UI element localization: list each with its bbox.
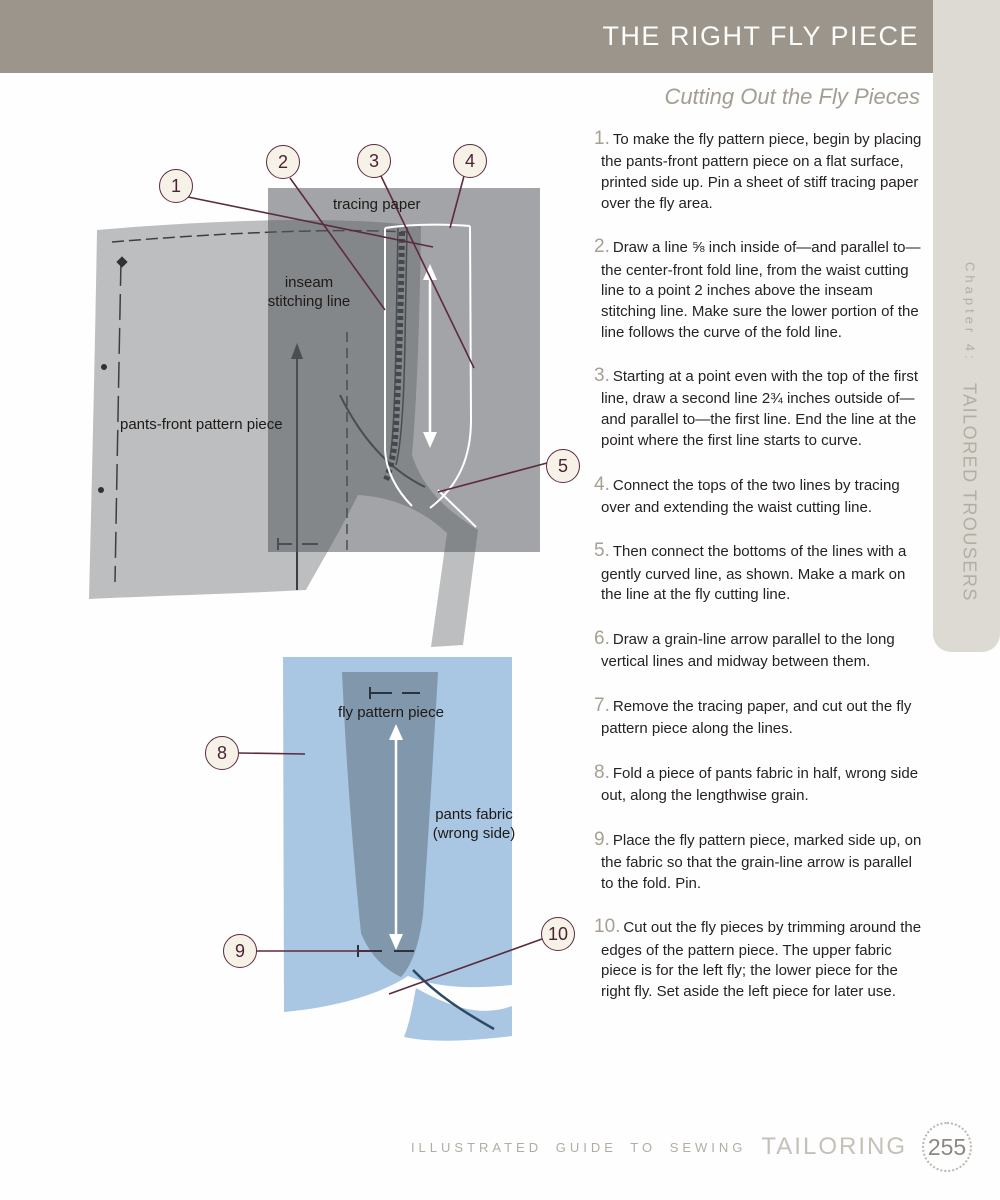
page-title: THE RIGHT FLY PIECE — [0, 0, 933, 73]
step-8: 8.Fold a piece of pants fabric in half, … — [594, 760, 924, 807]
step-number: 2. — [594, 236, 610, 257]
chapter-title: TAILORED TROUSERS — [960, 383, 980, 602]
diagram-cutting-fabric-art — [180, 640, 600, 1060]
callout-9: 9 — [223, 934, 257, 968]
step-6: 6.Draw a grain-line arrow parallel to th… — [594, 626, 924, 673]
page-footer: ILLUSTRATED GUIDE TO SEWING TAILORING 25… — [0, 1122, 972, 1172]
chapter-tab: Chapter 4: TAILORED TROUSERS — [933, 0, 1000, 652]
diagram-tracing-fly-art — [80, 140, 590, 660]
step-text: Then connect the bottoms of the lines wi… — [601, 543, 906, 603]
label-inseam-stitching-line: inseam stitching line — [255, 274, 363, 312]
step-number: 5. — [594, 540, 610, 561]
label-pants-fabric: pants fabric (wrong side) — [430, 806, 518, 844]
step-text: Draw a grain-line arrow parallel to the … — [601, 631, 895, 670]
label-inseam-line2: stitching line — [268, 293, 351, 310]
step-number: 4. — [594, 474, 610, 495]
step-1: 1.To make the fly pattern piece, begin b… — [594, 126, 924, 214]
section-subtitle: Cutting Out the Fly Pieces — [664, 84, 920, 110]
pants-fabric-lower — [404, 988, 512, 1041]
step-text: To make the fly pattern piece, begin by … — [601, 131, 921, 212]
diagram-tracing-fly: tracing paper inseam stitching line pant… — [80, 140, 590, 660]
step-text: Connect the tops of the two lines by tra… — [601, 477, 900, 516]
callout-4: 4 — [453, 144, 487, 178]
step-5: 5.Then connect the bottoms of the lines … — [594, 538, 924, 606]
step-7: 7.Remove the tracing paper, and cut out … — [594, 693, 924, 740]
label-tracing-paper: tracing paper — [333, 196, 421, 215]
step-3: 3.Starting at a point even with the top … — [594, 363, 924, 451]
book-page: THE RIGHT FLY PIECE Chapter 4: TAILORED … — [0, 0, 1000, 1200]
step-text: Draw a line ⅝ inch inside of—and paralle… — [601, 239, 921, 340]
step-number: 1. — [594, 128, 610, 149]
page-number-badge: 255 — [922, 1122, 972, 1172]
page-number: 255 — [928, 1134, 966, 1161]
callout-2: 2 — [266, 145, 300, 179]
chapter-label: Chapter 4: — [963, 262, 978, 363]
callout-5: 5 — [546, 449, 580, 483]
footer-series-title: ILLUSTRATED GUIDE TO SEWING — [411, 1140, 746, 1155]
step-10: 10.Cut out the fly pieces by trimming ar… — [594, 914, 924, 1002]
step-text: Remove the tracing paper, and cut out th… — [601, 698, 911, 737]
diagram-cutting-fabric: fly pattern piece pants fabric (wrong si… — [180, 640, 600, 1060]
step-number: 3. — [594, 365, 610, 386]
callout-8: 8 — [205, 736, 239, 770]
step-9: 9.Place the fly pattern piece, marked si… — [594, 827, 924, 895]
label-pants-front-pattern-piece: pants-front pattern piece — [120, 416, 283, 435]
footer-book-title: TAILORING — [761, 1133, 907, 1161]
chapter-tab-text: Chapter 4: TAILORED TROUSERS — [954, 262, 980, 602]
callout-1: 1 — [159, 169, 193, 203]
step-4: 4.Connect the tops of the two lines by t… — [594, 472, 924, 519]
label-fly-pattern-piece: fly pattern piece — [326, 704, 456, 723]
label-inseam-line1: inseam — [285, 274, 333, 291]
step-text: Starting at a point even with the top of… — [601, 368, 918, 449]
callout-3: 3 — [357, 144, 391, 178]
step-text: Cut out the fly pieces by trimming aroun… — [601, 919, 921, 1000]
step-2: 2.Draw a line ⅝ inch inside of—and paral… — [594, 234, 924, 343]
step-text: Fold a piece of pants fabric in half, wr… — [601, 765, 918, 804]
header-band: THE RIGHT FLY PIECE — [0, 0, 933, 73]
pattern-dot — [98, 487, 104, 493]
step-text: Place the fly pattern piece, marked side… — [601, 832, 921, 892]
instruction-list: 1.To make the fly pattern piece, begin b… — [594, 126, 924, 1023]
pattern-dot — [101, 364, 107, 370]
callout-10: 10 — [541, 917, 575, 951]
label-fabric-line2: (wrong side) — [433, 825, 516, 842]
label-fabric-line1: pants fabric — [435, 806, 513, 823]
